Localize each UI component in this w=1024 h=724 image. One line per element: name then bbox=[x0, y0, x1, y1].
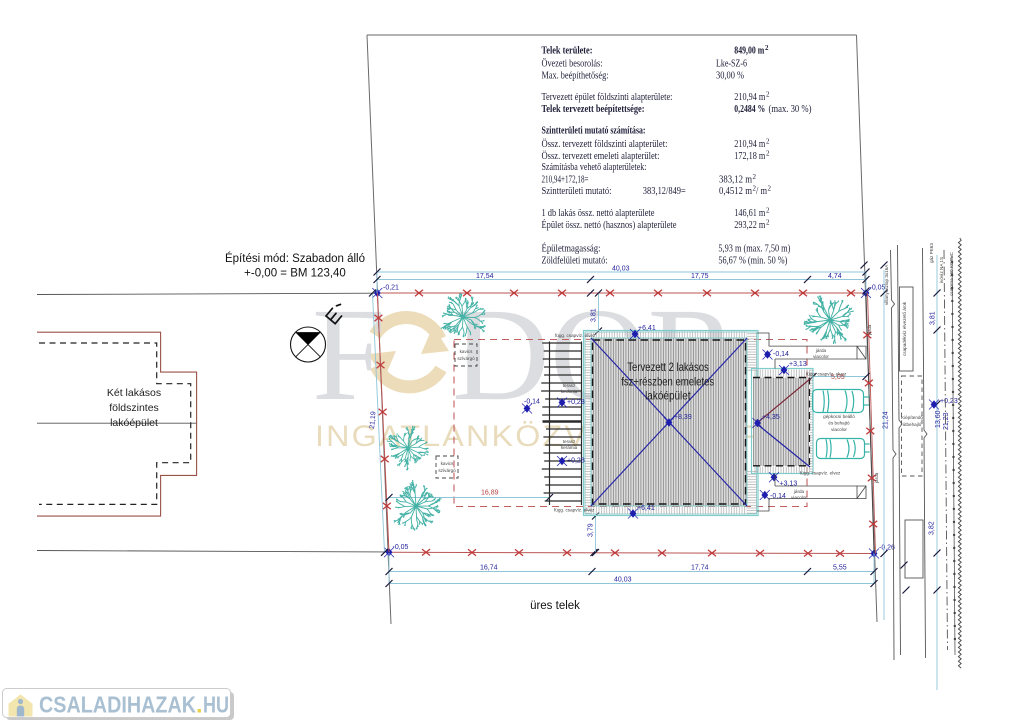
svg-text:fsz+részben emeletes: fsz+részben emeletes bbox=[621, 374, 714, 388]
svg-text:(max. 30 %): (max. 30 %) bbox=[769, 103, 812, 115]
svg-text:viacolor: viacolor bbox=[831, 427, 847, 432]
svg-text:ivóvíz NA 1S: ivóvíz NA 1S bbox=[939, 257, 944, 283]
svg-text:/ m: / m bbox=[756, 185, 767, 197]
svg-text:-0,21: -0,21 bbox=[383, 285, 399, 292]
svg-text:kerámia: kerámia bbox=[561, 445, 578, 450]
svg-text:Lke-SZ-6: Lke-SZ-6 bbox=[716, 58, 747, 70]
svg-text:30,00 %: 30,00 % bbox=[716, 70, 744, 82]
svg-text:2: 2 bbox=[768, 185, 772, 193]
svg-text:Szintterületi mutató számítása: Szintterületi mutató számítása: bbox=[542, 125, 646, 137]
svg-text:terasz: terasz bbox=[563, 439, 576, 444]
svg-text:40,03: 40,03 bbox=[612, 266, 630, 273]
svg-text:Össz. tervezett földszinti ala: Össz. tervezett földszinti alapterület: bbox=[542, 138, 668, 150]
svg-text:villanyoszlop 3x16A: villanyoszlop 3x16A bbox=[884, 264, 889, 305]
svg-text:5,55: 5,55 bbox=[833, 565, 847, 572]
svg-text:csatorna 160 KGPVC: csatorna 160 KGPVC bbox=[949, 251, 954, 296]
svg-text:kerámia: kerámia bbox=[561, 389, 578, 394]
svg-text:40,03: 40,03 bbox=[614, 577, 632, 584]
svg-text:Építési mód: Szabadon álló: Építési mód: Szabadon álló bbox=[225, 252, 365, 265]
svg-text:Tervezett épület földszinti al: Tervezett épület földszinti alapterülete… bbox=[542, 91, 673, 103]
svg-text:16,89: 16,89 bbox=[481, 490, 499, 497]
svg-text:3,82: 3,82 bbox=[929, 521, 936, 535]
svg-text:3,79: 3,79 bbox=[588, 523, 595, 537]
svg-text:függ. csapvíz. elvez: függ. csapvíz. elvez bbox=[554, 508, 595, 513]
svg-text:függ. csapvíz. elvez: függ. csapvíz. elvez bbox=[806, 372, 847, 377]
svg-text:HU: HU bbox=[203, 692, 229, 718]
svg-text:-0,05: -0,05 bbox=[393, 544, 409, 551]
svg-text:járda: járda bbox=[874, 472, 879, 484]
svg-text:-0,14: -0,14 bbox=[770, 493, 786, 500]
svg-text:Max. beépíthetőség:: Max. beépíthetőség: bbox=[542, 70, 609, 82]
svg-text:849,00 m: 849,00 m bbox=[734, 44, 764, 56]
svg-text:17,54: 17,54 bbox=[476, 273, 494, 280]
svg-text:383,12/849=: 383,12/849= bbox=[643, 185, 686, 197]
svg-text:gépkocsi beálló: gépkocsi beálló bbox=[823, 414, 855, 419]
svg-text:Kiépítendő: Kiépítendő bbox=[901, 415, 923, 420]
svg-text:+8,39: +8,39 bbox=[674, 414, 692, 421]
svg-text:210,94 m: 210,94 m bbox=[734, 138, 765, 150]
svg-text:Zöldfelületi mutató:: Zöldfelületi mutató: bbox=[542, 255, 608, 267]
svg-text:+3,13: +3,13 bbox=[789, 361, 807, 368]
svg-text:2: 2 bbox=[766, 91, 770, 99]
svg-text:5,93 m (max. 7,50 m): 5,93 m (max. 7,50 m) bbox=[718, 242, 790, 254]
svg-text:és behajtó: és behajtó bbox=[828, 421, 850, 426]
svg-text:Épületmagasság:: Épületmagasság: bbox=[542, 242, 601, 254]
svg-text:+-0,00 = BM 123,40: +-0,00 = BM 123,40 bbox=[244, 268, 346, 280]
svg-text:17,75: 17,75 bbox=[691, 273, 709, 280]
svg-text:lakóépület: lakóépület bbox=[110, 417, 158, 429]
svg-text:Épület össz. nettó (hasznos) a: Épület össz. nettó (hasznos) alapterület… bbox=[542, 219, 677, 231]
svg-text:kavics: kavics bbox=[441, 461, 454, 466]
svg-text:járda: járda bbox=[793, 489, 805, 494]
svg-text:terasz: terasz bbox=[563, 383, 576, 388]
svg-text:17,74: 17,74 bbox=[691, 565, 709, 572]
svg-text:2: 2 bbox=[766, 219, 770, 227]
svg-text:383,12 m: 383,12 m bbox=[719, 173, 752, 185]
svg-text:1 db lakás össz. nettó alapter: 1 db lakás össz. nettó alapterülete bbox=[542, 207, 655, 219]
svg-text:járda: járda bbox=[867, 324, 872, 336]
svg-text:gáz PE63: gáz PE63 bbox=[929, 243, 934, 263]
svg-text:Két lakásos: Két lakásos bbox=[107, 387, 161, 399]
svg-text:viacolor: viacolor bbox=[791, 495, 807, 500]
svg-text:szívárgó: szívárgó bbox=[457, 356, 475, 361]
svg-text:Számításba vehető alapterülete: Számításba vehető alapterületek: bbox=[542, 161, 647, 173]
svg-text:2: 2 bbox=[766, 150, 770, 158]
svg-text:szívárgó: szívárgó bbox=[438, 468, 456, 473]
svg-text:+0,28: +0,28 bbox=[567, 458, 585, 465]
svg-text:földszintes: földszintes bbox=[109, 402, 159, 414]
svg-text:CSALADIHAZAK: CSALADIHAZAK bbox=[39, 692, 196, 718]
svg-text:+6,41: +6,41 bbox=[637, 505, 655, 512]
svg-text:146,61 m: 146,61 m bbox=[734, 207, 765, 219]
svg-text:4,74: 4,74 bbox=[828, 273, 842, 280]
svg-text:0,2484 %: 0,2484 % bbox=[734, 103, 765, 115]
svg-text:210,94 m: 210,94 m bbox=[734, 91, 765, 103]
svg-text:-0,14: -0,14 bbox=[524, 399, 540, 406]
svg-text:3,81: 3,81 bbox=[591, 308, 598, 322]
svg-text:függ. csapvíz. elvez: függ. csapvíz. elvez bbox=[800, 471, 841, 476]
svg-text:0,4512 m: 0,4512 m bbox=[719, 185, 752, 197]
svg-text:16,74: 16,74 bbox=[480, 565, 498, 572]
svg-text:csapadékvíz elvezető árok: csapadékvíz elvezető árok bbox=[902, 301, 907, 356]
svg-text:210,94+172,18=: 210,94+172,18= bbox=[542, 173, 589, 185]
svg-text:Telek tervezett beépítettsége:: Telek tervezett beépítettsége: bbox=[542, 103, 645, 115]
svg-text:+6,41: +6,41 bbox=[638, 325, 656, 332]
svg-text:293,22 m: 293,22 m bbox=[734, 219, 765, 231]
svg-text:21,23: 21,23 bbox=[943, 412, 950, 430]
svg-text:+0,23: +0,23 bbox=[940, 398, 958, 405]
svg-text:járda: járda bbox=[815, 348, 827, 353]
svg-text:+0,28: +0,28 bbox=[567, 399, 585, 406]
svg-text:56,67 % (min. 50 %): 56,67 % (min. 50 %) bbox=[718, 255, 787, 267]
svg-text:.: . bbox=[196, 692, 203, 718]
svg-text:viacolor: viacolor bbox=[813, 354, 829, 359]
svg-text:Szintterületi mutató:: Szintterületi mutató: bbox=[542, 185, 612, 197]
svg-text:útbehajló: útbehajló bbox=[903, 422, 922, 427]
svg-text:+4,35: +4,35 bbox=[762, 414, 780, 421]
svg-text:172,18 m: 172,18 m bbox=[734, 150, 765, 162]
svg-text:lakóépület: lakóépület bbox=[645, 389, 691, 403]
svg-text:13,60: 13,60 bbox=[935, 410, 942, 428]
svg-text:függ. csapvíz. elvez: függ. csapvíz. elvez bbox=[555, 333, 596, 338]
svg-text:2: 2 bbox=[753, 173, 757, 181]
svg-text:üres telek: üres telek bbox=[530, 600, 580, 612]
svg-text:Tervezett 2 lakásos: Tervezett 2 lakásos bbox=[627, 360, 709, 374]
svg-text:-0,14: -0,14 bbox=[773, 351, 789, 358]
svg-text:2: 2 bbox=[766, 137, 770, 145]
svg-text:Telek területe:: Telek területe: bbox=[542, 44, 593, 56]
svg-text:Övezeti besorolás:: Övezeti besorolás: bbox=[542, 58, 603, 70]
svg-text:21,24: 21,24 bbox=[883, 411, 890, 429]
svg-text:+3,13: +3,13 bbox=[780, 481, 798, 488]
svg-text:2: 2 bbox=[766, 206, 770, 214]
svg-text:3,81: 3,81 bbox=[930, 311, 937, 325]
svg-text:2: 2 bbox=[765, 44, 769, 52]
svg-text:kavics: kavics bbox=[460, 349, 473, 354]
